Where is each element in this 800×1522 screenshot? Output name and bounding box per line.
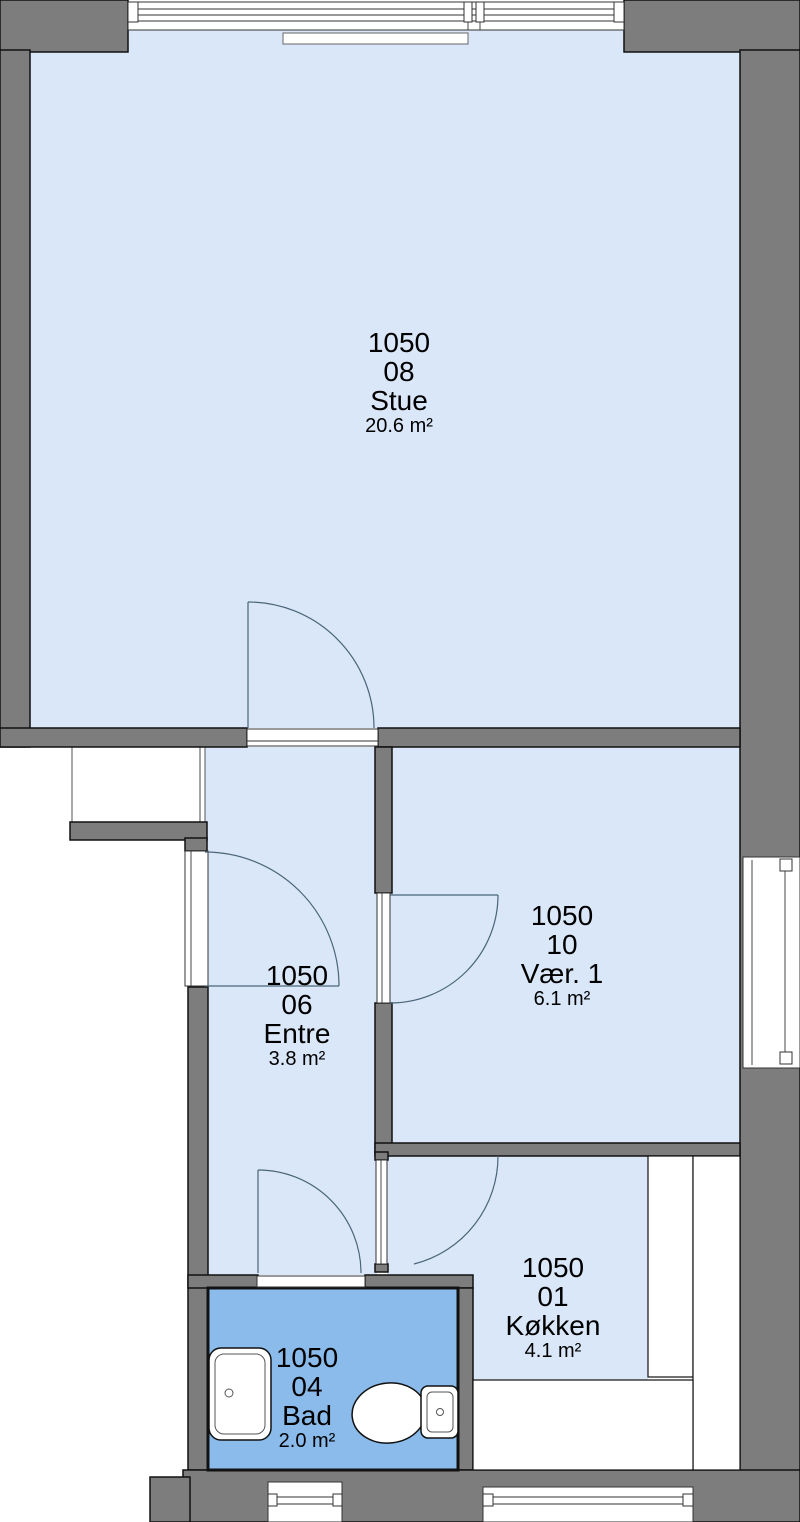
room-area: 2.0 m² — [276, 1430, 338, 1453]
room-area: 3.8 m² — [264, 1048, 331, 1071]
wall-entrance-stub — [185, 838, 207, 851]
wall-left — [0, 50, 30, 747]
window-right — [743, 857, 800, 1068]
room-area: 4.1 m² — [506, 1340, 601, 1363]
floor-plan-drawing — [0, 0, 800, 1522]
room-number: 10 — [521, 930, 603, 959]
room-name: Vær. 1 — [521, 959, 603, 988]
window-bottom-koekken — [483, 1487, 693, 1522]
wall-bottom-left-step — [150, 1477, 190, 1522]
room-name: Køkken — [506, 1311, 601, 1340]
room-label-bad: 1050 04 Bad 2.0 m² — [276, 1343, 338, 1453]
radiator — [283, 33, 468, 44]
room-area: 6.1 m² — [521, 988, 603, 1011]
room-number: 08 — [365, 357, 433, 386]
kitchen-counter-right-lower — [693, 1156, 740, 1470]
wall-west-entre-bad — [188, 987, 208, 1470]
wall-right — [740, 50, 800, 1522]
wall-top-left-block — [0, 0, 128, 52]
room-label-vaer1: 1050 10 Vær. 1 6.1 m² — [521, 901, 603, 1011]
wall-stue-bottom-right — [378, 728, 740, 747]
window-top — [128, 2, 624, 30]
kitchen-counter-right-upper — [648, 1156, 693, 1377]
room-unit: 1050 — [276, 1343, 338, 1372]
wall-entre-vaer1-lower — [375, 1003, 392, 1153]
wall-entre-vaer1-upper — [375, 747, 392, 893]
kitchen-counter-bottom — [473, 1380, 693, 1470]
room-name: Entre — [264, 1019, 331, 1048]
floor-plan: 1050 08 Stue 20.6 m² 1050 10 Vær. 1 6.1 … — [0, 0, 800, 1522]
wall-bad-top-right — [365, 1275, 473, 1288]
window-bottom-bad — [268, 1482, 342, 1522]
entrance-niche — [72, 747, 205, 822]
sink-icon — [209, 1348, 271, 1440]
room-unit: 1050 — [264, 961, 331, 990]
room-area: 20.6 m² — [365, 415, 433, 438]
room-number: 01 — [506, 1282, 601, 1311]
wall-vaer1-bottom — [375, 1143, 740, 1156]
room-name: Bad — [276, 1401, 338, 1430]
room-label-koekken: 1050 01 Køkken 4.1 m² — [506, 1253, 601, 1363]
room-unit: 1050 — [365, 328, 433, 357]
wall-top-right-block — [624, 0, 800, 52]
wall-bad-top-left — [188, 1275, 258, 1288]
room-number: 06 — [264, 990, 331, 1019]
room-unit: 1050 — [506, 1253, 601, 1282]
wall-stue-bottom-left — [0, 728, 247, 747]
room-label-stue: 1050 08 Stue 20.6 m² — [365, 328, 433, 438]
room-name: Stue — [365, 386, 433, 415]
room-number: 04 — [276, 1372, 338, 1401]
room-label-entre: 1050 06 Entre 3.8 m² — [264, 961, 331, 1071]
room-unit: 1050 — [521, 901, 603, 930]
